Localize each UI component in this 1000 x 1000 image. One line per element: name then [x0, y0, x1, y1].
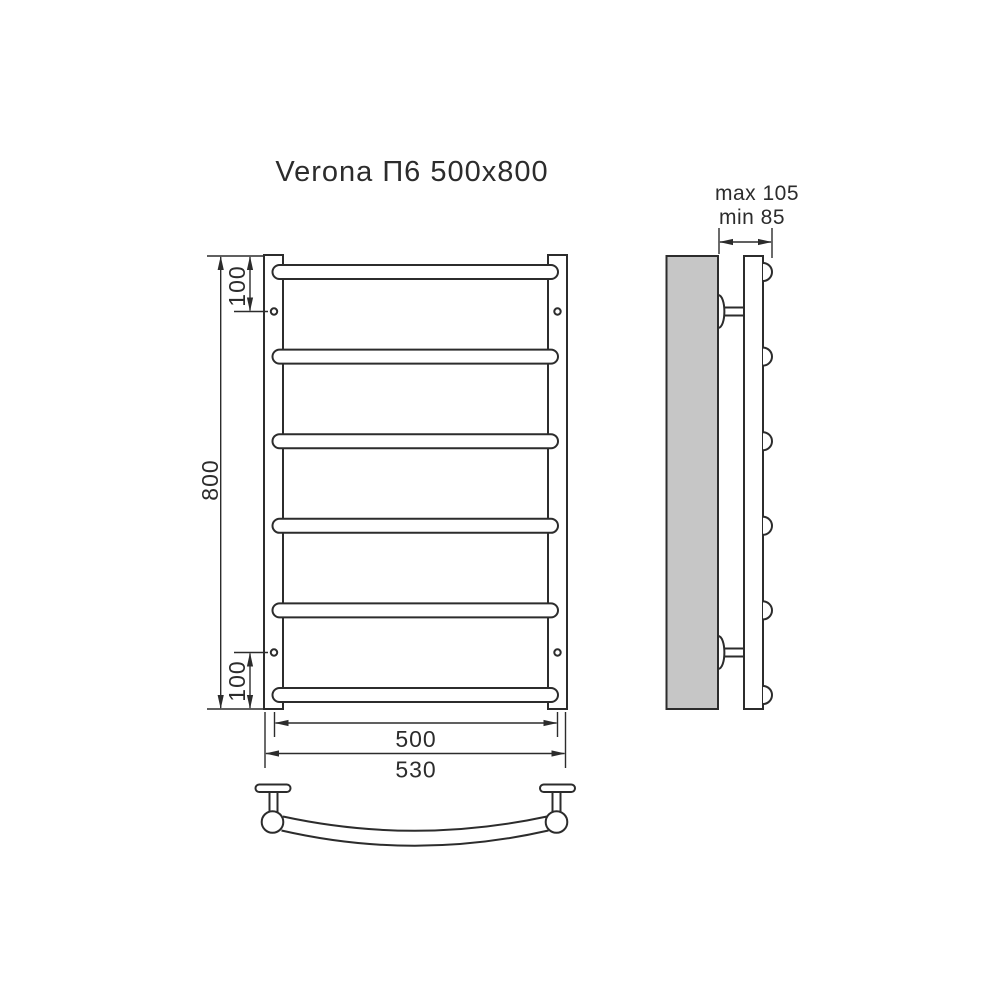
- wall-bracket: [718, 295, 744, 328]
- mount-flange: [540, 785, 575, 793]
- dim-label-depth-max: max 105: [715, 182, 799, 205]
- side-dimensions: max 105 min 85: [715, 182, 799, 258]
- mounting-hole: [554, 649, 560, 655]
- top-view: [256, 785, 576, 846]
- dim-label-rung-width: 500: [395, 726, 436, 752]
- rail-section: [546, 811, 568, 833]
- mounting-hole: [554, 308, 560, 314]
- rung-end: [763, 432, 772, 450]
- dim-label-depth-min: min 85: [719, 206, 785, 229]
- dim-label-height: 800: [197, 459, 223, 500]
- wall-section: [667, 256, 719, 709]
- mounting-hole: [271, 649, 277, 655]
- mount-flange: [256, 785, 291, 793]
- bracket-flange: [718, 636, 724, 669]
- curved-rung-back-edge: [282, 831, 549, 846]
- rung-end: [763, 686, 772, 704]
- front-left-rail: [264, 255, 283, 709]
- top-view-right-mount: [540, 785, 575, 833]
- front-view: [264, 255, 567, 709]
- dim-label-bottom-offset: 100: [224, 660, 250, 701]
- rung: [273, 350, 559, 364]
- top-view-left-mount: [256, 785, 291, 833]
- technical-drawing: Verona П6 500x800 800 100 100: [0, 0, 1000, 1000]
- front-right-rail: [548, 255, 567, 709]
- rail-section: [262, 811, 284, 833]
- dim-label-top-offset: 100: [224, 265, 250, 306]
- rung: [273, 688, 559, 702]
- rung-end: [763, 601, 772, 619]
- rung: [273, 265, 559, 279]
- side-view: [667, 256, 773, 709]
- drawing-title: Verona П6 500x800: [275, 156, 548, 188]
- wall-bracket: [718, 636, 744, 669]
- rung: [273, 603, 559, 617]
- rung-end: [763, 348, 772, 366]
- rung: [273, 519, 559, 533]
- mounting-hole: [271, 308, 277, 314]
- rung-end: [763, 517, 772, 535]
- bracket-flange: [718, 295, 724, 328]
- dim-label-overall-width: 530: [395, 757, 436, 783]
- side-rail: [744, 256, 763, 709]
- drawing-page: Verona П6 500x800 800 100 100: [0, 0, 1000, 1000]
- rung: [273, 434, 559, 448]
- curved-rung-front-edge: [283, 817, 547, 831]
- rung-end: [763, 263, 772, 281]
